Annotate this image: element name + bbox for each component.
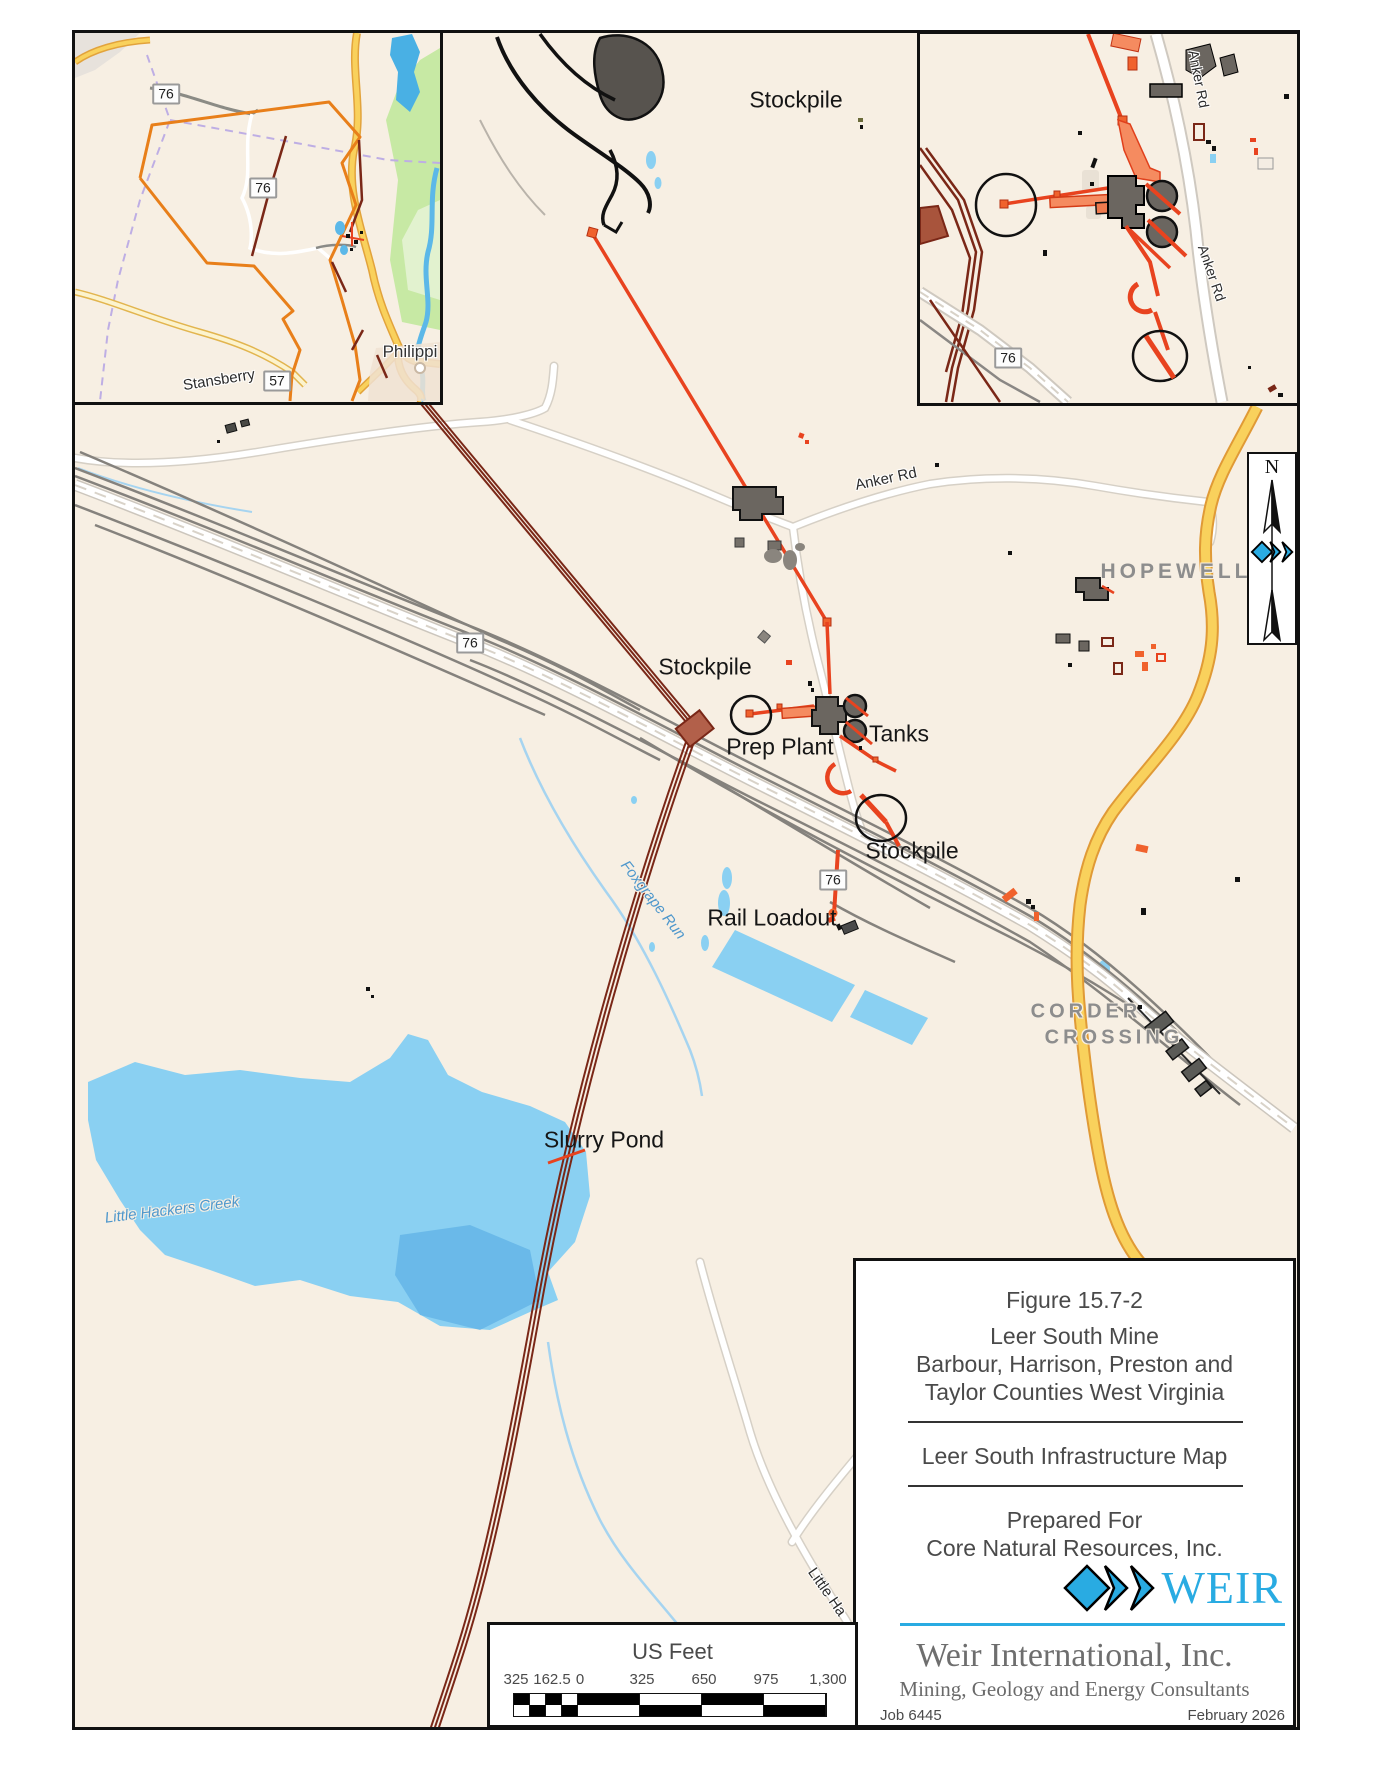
route-76-shield-inset-right: 76 <box>994 348 1022 369</box>
weir-rule <box>900 1623 1285 1626</box>
route-76-shield-inset-1: 76 <box>152 84 180 105</box>
scale-tick-label: 1,300 <box>809 1671 847 1688</box>
north-arrow-graphic <box>1249 478 1295 644</box>
route-76-shield-inset-2: 76 <box>249 178 277 199</box>
job-number: Job 6445 <box>880 1707 942 1724</box>
scale-tick-label: 975 <box>753 1671 778 1688</box>
route-76-shield-west: 76 <box>456 633 484 654</box>
compass-needle-icon <box>1264 480 1272 532</box>
counties-line-1: Barbour, Harrison, Preston and <box>856 1351 1293 1378</box>
title-divider-1 <box>908 1421 1243 1423</box>
weir-diamonds-icon <box>1252 542 1292 562</box>
company-name: Weir International, Inc. <box>856 1637 1293 1675</box>
scale-bar-graphic <box>513 1693 827 1717</box>
scale-tick-label: 325 <box>503 1671 528 1688</box>
client-name: Core Natural Resources, Inc. <box>856 1535 1293 1562</box>
locator-inset-canvas <box>75 33 440 402</box>
company-tagline: Mining, Geology and Energy Consultants <box>856 1677 1293 1702</box>
scale-tick-label: 162.5 <box>533 1671 571 1688</box>
scale-tick-label: 325 <box>629 1671 654 1688</box>
title-divider-2 <box>908 1485 1243 1487</box>
prepared-for-label: Prepared For <box>856 1507 1293 1534</box>
scale-tick-label: 650 <box>691 1671 716 1688</box>
philippi-built-area <box>368 342 440 401</box>
scale-tick-label: 0 <box>576 1671 584 1688</box>
map-title: Leer South Infrastructure Map <box>856 1443 1293 1470</box>
title-block: Figure 15.7-2 Leer South Mine Barbour, H… <box>853 1258 1296 1728</box>
scale-units-label: US Feet <box>490 1639 855 1665</box>
plant-inset-canvas <box>920 34 1297 403</box>
counties-line-2: Taylor Counties West Virginia <box>856 1379 1293 1406</box>
weir-logo: WEIR <box>1061 1561 1283 1614</box>
north-arrow-box: N <box>1247 452 1297 645</box>
weir-wordmark: WEIR <box>1161 1561 1283 1614</box>
date-label: February 2026 <box>1187 1707 1285 1724</box>
scale-bar-box: US Feet 325 162.5 0 325 650 975 1,300 <box>487 1622 858 1728</box>
route-57-shield-inset: 57 <box>263 371 291 392</box>
plant-detail-inset-map <box>917 31 1300 406</box>
north-label: N <box>1249 456 1295 479</box>
weir-diamonds-icon <box>1061 1562 1157 1614</box>
compass-tail-icon <box>1264 590 1272 640</box>
mine-name: Leer South Mine <box>856 1323 1293 1350</box>
route-76-shield-south: 76 <box>819 870 847 891</box>
locator-inset-map <box>72 30 443 405</box>
figure-number: Figure 15.7-2 <box>856 1287 1293 1314</box>
map-figure-page: Stockpile Anker Rd HOPEWELL Stockpile Pr… <box>0 0 1375 1779</box>
